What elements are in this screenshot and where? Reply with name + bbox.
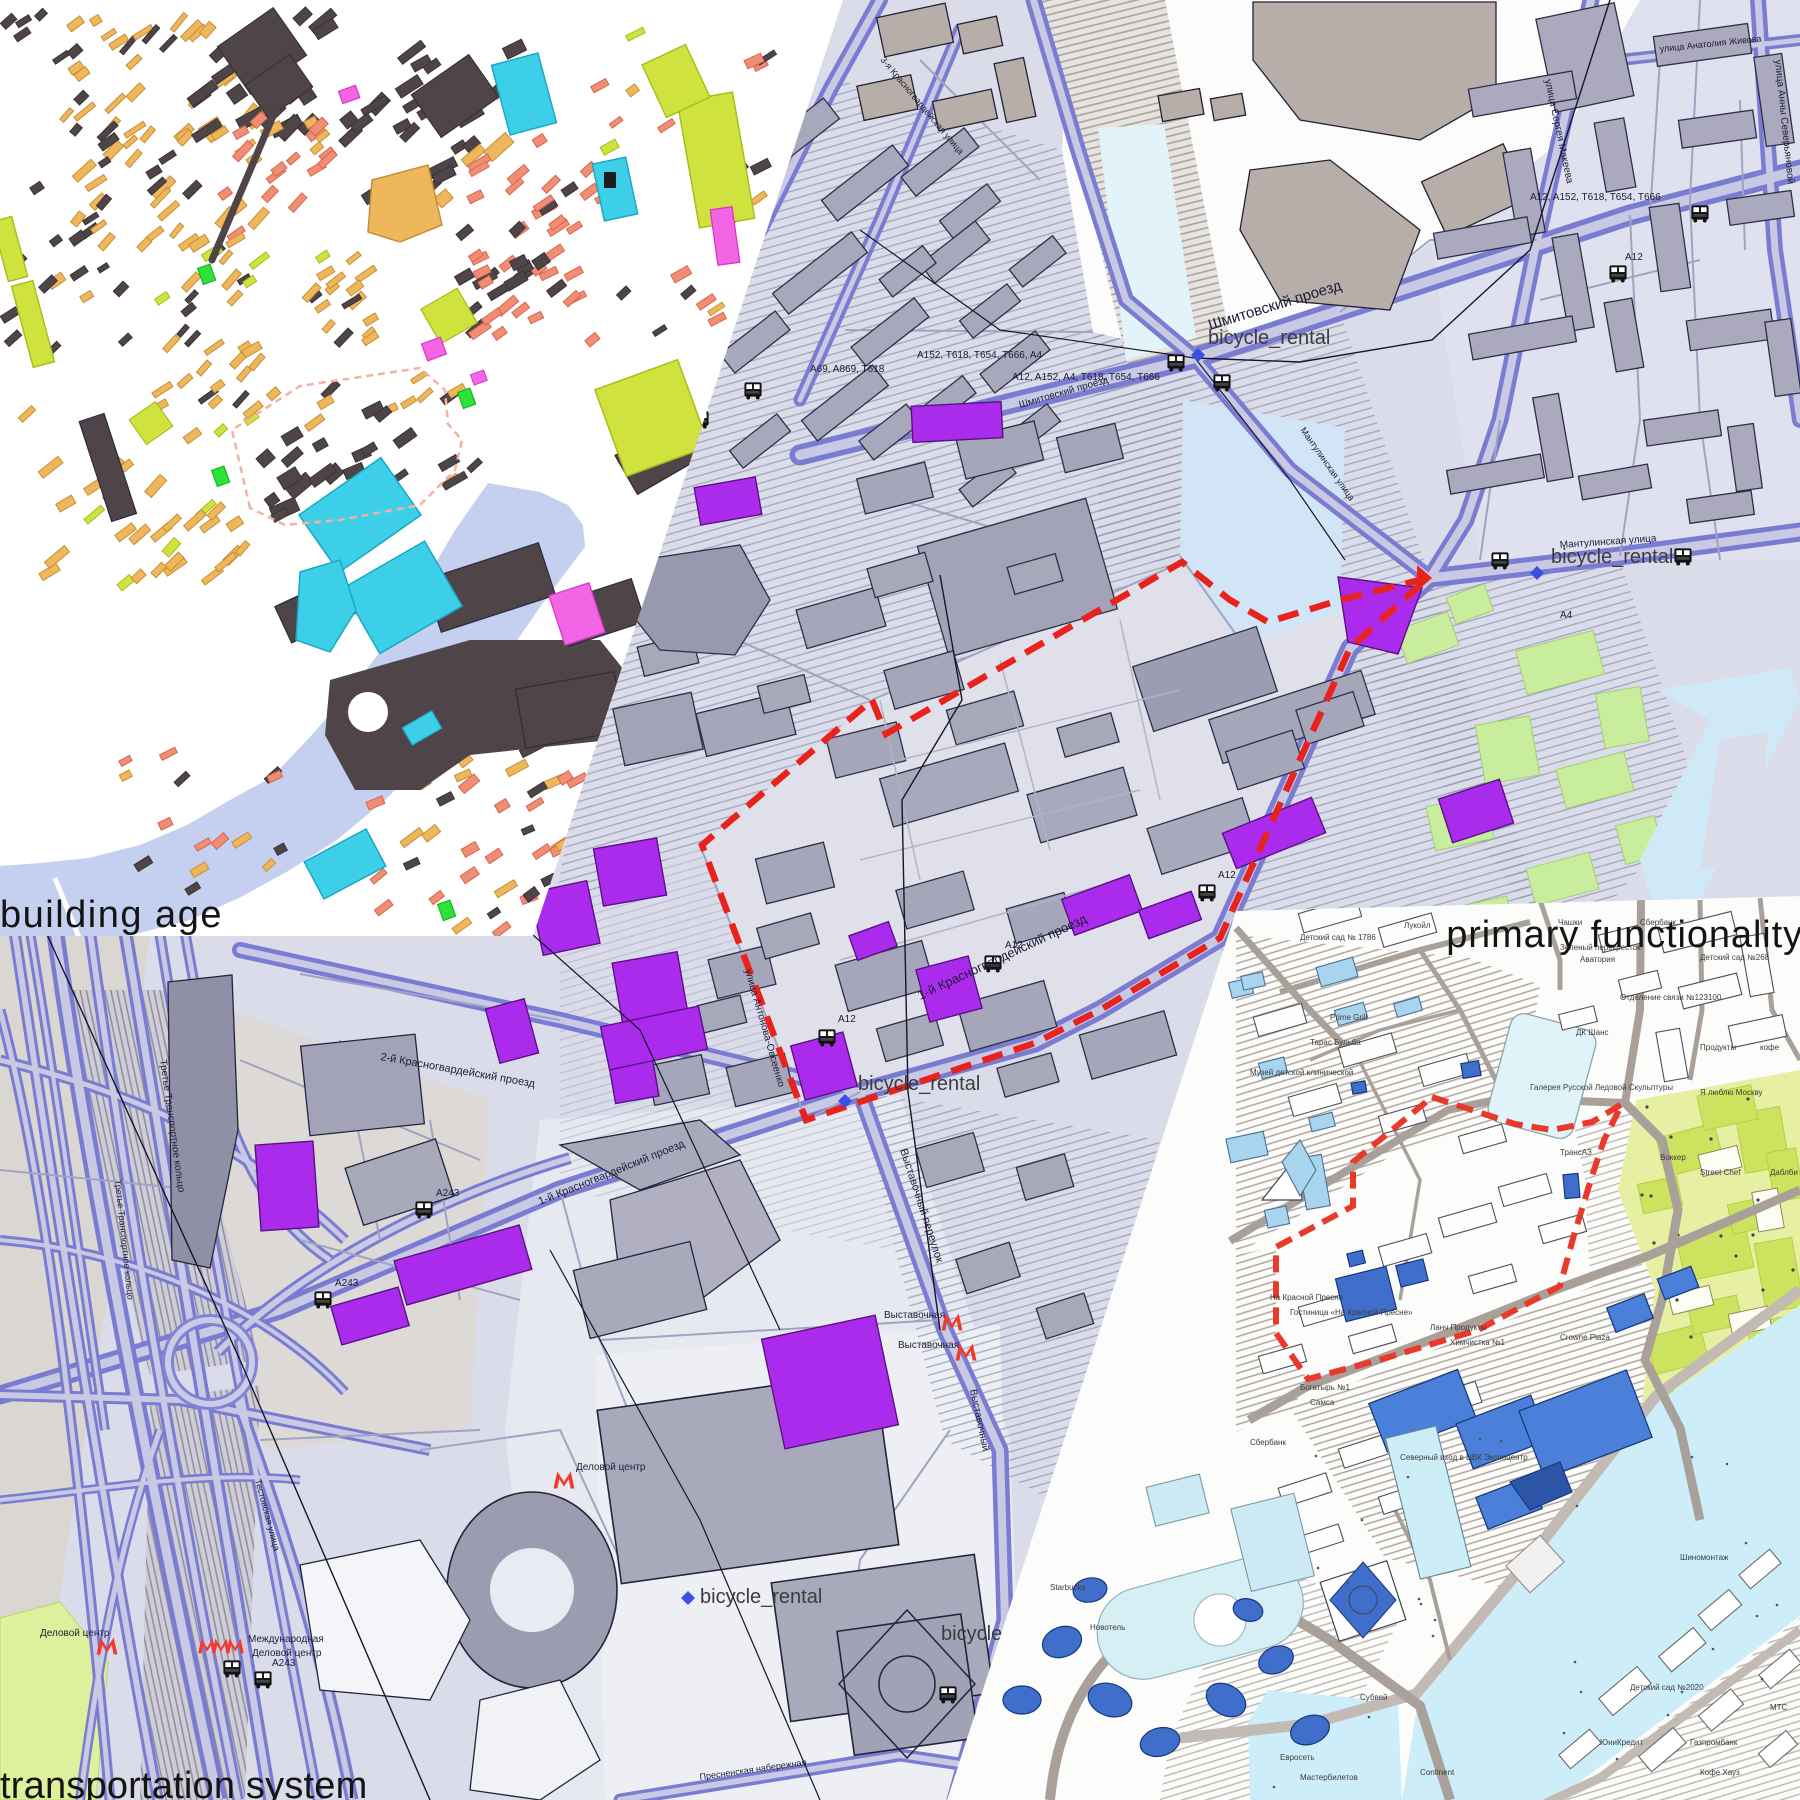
svg-text:A243: A243: [272, 1658, 296, 1669]
svg-text:bicycle_rental: bicycle_rental: [700, 1586, 822, 1608]
svg-text:Выставочная: Выставочная: [898, 1340, 959, 1351]
svg-text:Continent: Continent: [1420, 1768, 1455, 1777]
svg-text:МТС: МТС: [1770, 1703, 1788, 1712]
svg-text:A243: A243: [436, 1188, 460, 1199]
svg-text:ЮниКредит: ЮниКредит: [1600, 1738, 1643, 1747]
svg-text:Самса: Самса: [1310, 1398, 1335, 1407]
svg-text:A12, A152, T618, T654, T666: A12, A152, T618, T654, T666: [1530, 192, 1661, 203]
svg-text:Аватория: Аватория: [1580, 955, 1615, 964]
svg-text:ДК Шанс: ДК Шанс: [1576, 1028, 1609, 1037]
svg-text:Я люблю Москву: Я люблю Москву: [1700, 1088, 1763, 1097]
svg-text:Street Chef: Street Chef: [1700, 1168, 1741, 1177]
svg-text:Международная: Международная: [248, 1634, 324, 1645]
svg-text:Гостиница «На Красной Пресне»: Гостиница «На Красной Пресне»: [1290, 1308, 1413, 1317]
svg-text:Сбербанк: Сбербанк: [1250, 1438, 1286, 1447]
svg-text:Тарас Бульба: Тарас Бульба: [1310, 1038, 1361, 1047]
svg-text:кофе: кофе: [1760, 1043, 1780, 1052]
svg-text:Воккер: Воккер: [1660, 1153, 1686, 1162]
svg-text:На Красной Пресне: На Красной Пресне: [1270, 1293, 1344, 1302]
svg-text:Субвей: Субвей: [1360, 1693, 1388, 1702]
svg-text:Музей детской клинической: Музей детской клинической: [1250, 1068, 1353, 1077]
svg-text:Мастербилетов: Мастербилетов: [1300, 1773, 1358, 1782]
svg-text:primary functionality: primary functionality: [1446, 914, 1800, 956]
svg-text:Продукты: Продукты: [1700, 1043, 1736, 1052]
svg-text:A12: A12: [1218, 870, 1236, 881]
svg-text:Богатырь №1: Богатырь №1: [1300, 1383, 1351, 1392]
svg-text:Детский сад №2020: Детский сад №2020: [1630, 1683, 1704, 1692]
svg-text:Новотель: Новотель: [1090, 1623, 1125, 1632]
svg-text:Газпромбанк: Газпромбанк: [1690, 1738, 1738, 1747]
svg-text:A4: A4: [1560, 610, 1573, 621]
svg-text:Starbucks: Starbucks: [1050, 1583, 1086, 1592]
svg-text:A12: A12: [1625, 252, 1643, 263]
svg-text:ТрансАЗ: ТрансАЗ: [1560, 1148, 1592, 1157]
svg-text:Даблби: Даблби: [1770, 1168, 1798, 1177]
svg-text:Деловой центр: Деловой центр: [576, 1462, 646, 1473]
svg-text:bicycle_rental: bicycle_rental: [1208, 327, 1330, 349]
svg-text:building age: building age: [0, 894, 223, 936]
svg-text:A69, A869, T618: A69, A869, T618: [810, 364, 885, 375]
svg-text:Деловой центр: Деловой центр: [40, 1628, 110, 1639]
svg-text:A152, T618, T654, T666, A4: A152, T618, T654, T666, A4: [917, 350, 1043, 361]
svg-text:Кофе Хауз: Кофе Хауз: [1700, 1768, 1740, 1777]
svg-text:Ланч Продукты: Ланч Продукты: [1430, 1323, 1487, 1332]
svg-text:A12: A12: [838, 1014, 856, 1025]
svg-text:bicycle_rental: bicycle_rental: [858, 1073, 980, 1095]
svg-text:Выставочная: Выставочная: [884, 1310, 945, 1321]
svg-text:transportation system: transportation system: [0, 1765, 367, 1800]
svg-text:Лукойл: Лукойл: [1404, 921, 1431, 930]
svg-text:Crowne Plaza: Crowne Plaza: [1560, 1333, 1610, 1342]
svg-text:Северный вход в ЦВК Экспоцентр: Северный вход в ЦВК Экспоцентр: [1400, 1453, 1528, 1462]
svg-text:Шиномонтаж: Шиномонтаж: [1680, 1553, 1729, 1562]
svg-text:Prime Grill: Prime Grill: [1330, 1013, 1368, 1022]
svg-text:A243: A243: [335, 1278, 359, 1289]
svg-text:Евросеть: Евросеть: [1280, 1753, 1315, 1762]
svg-text:Галерея Русской Ледовой Скульп: Галерея Русской Ледовой Скульптуры: [1530, 1083, 1673, 1092]
svg-text:Детский сад № 1786: Детский сад № 1786: [1300, 933, 1376, 942]
svg-text:Отделение связи №123100: Отделение связи №123100: [1620, 993, 1722, 1002]
svg-text:Химчистка №1: Химчистка №1: [1450, 1338, 1506, 1347]
svg-text:bicycle: bicycle: [941, 1623, 1002, 1645]
